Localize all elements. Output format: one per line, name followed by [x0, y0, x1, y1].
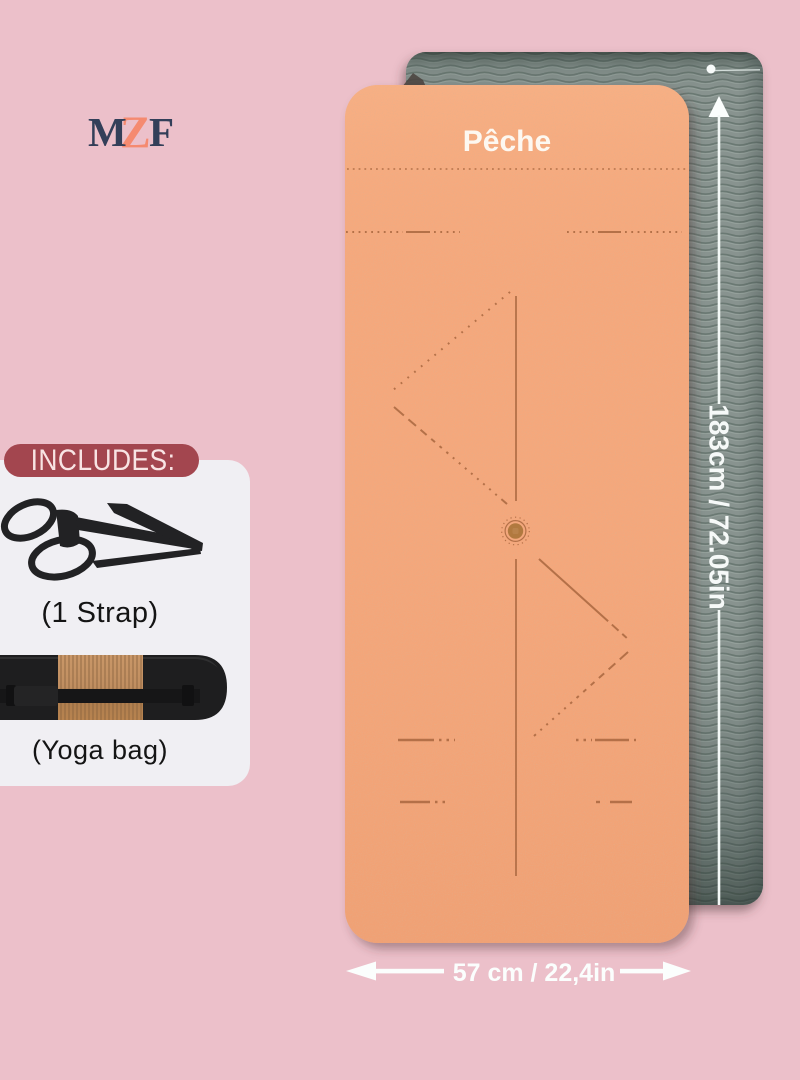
- svg-text:57 cm / 22,4in: 57 cm / 22,4in: [453, 959, 616, 987]
- svg-text:Pêche: Pêche: [463, 125, 551, 158]
- svg-text:(Yoga bag): (Yoga bag): [32, 735, 168, 765]
- svg-text:(1 Strap): (1 Strap): [41, 597, 158, 629]
- svg-text:183cm / 72.05in: 183cm / 72.05in: [704, 404, 735, 609]
- svg-text:M: M: [88, 109, 127, 155]
- svg-text:F: F: [149, 109, 174, 155]
- svg-text:INCLUDES:: INCLUDES:: [31, 442, 176, 476]
